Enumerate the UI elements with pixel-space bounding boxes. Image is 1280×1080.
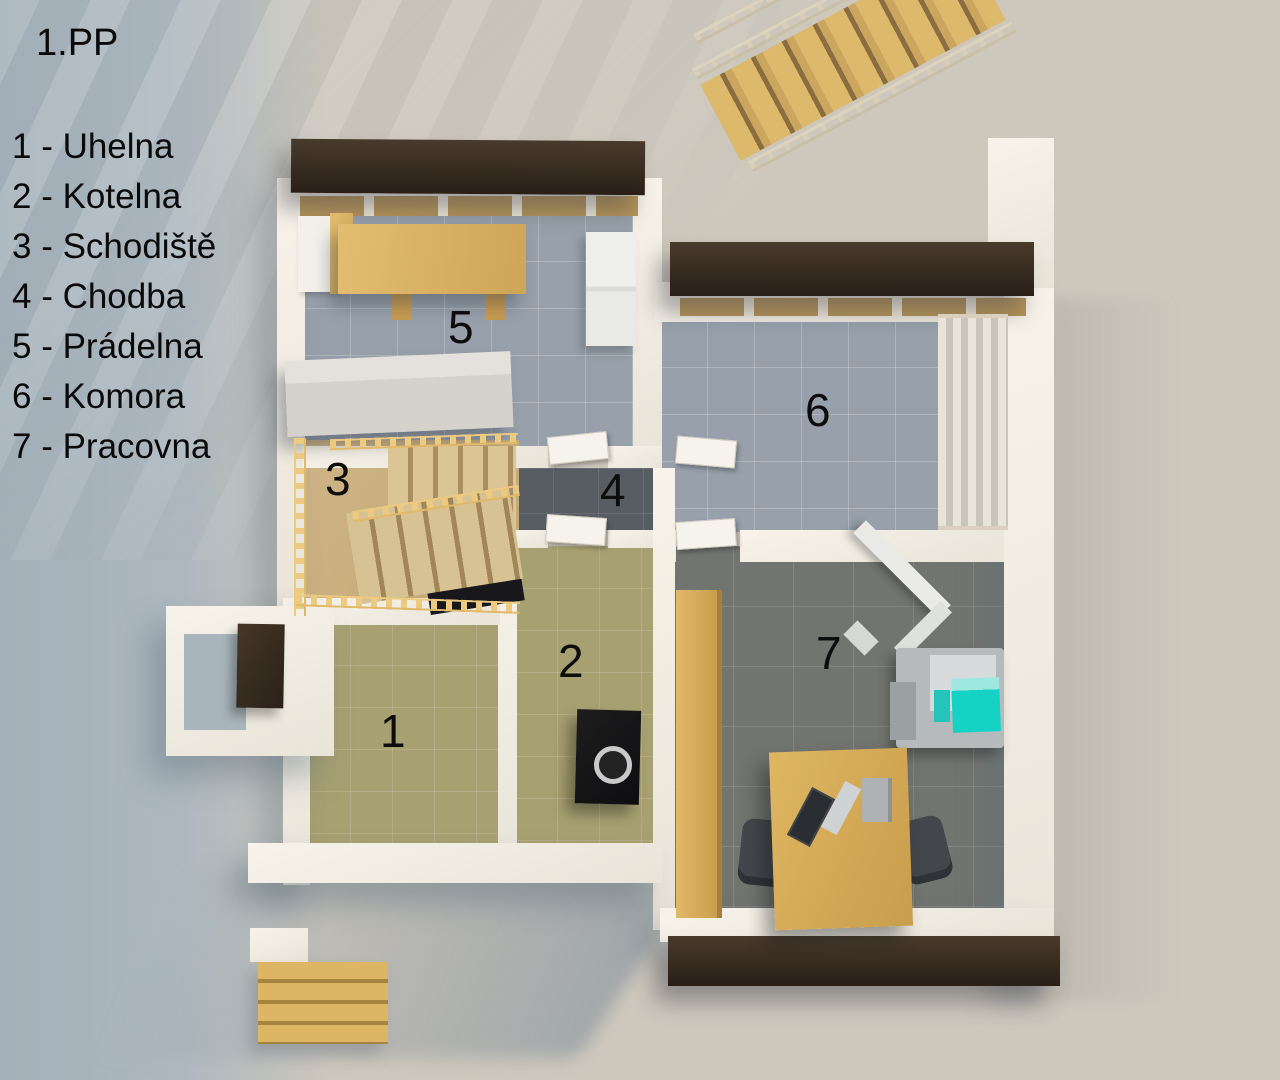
storage-shelving-unit: [938, 314, 1008, 530]
room-label-kotelna: 2: [558, 634, 584, 688]
room-label-pradelna: 5: [448, 300, 474, 354]
stair-railing-left: [294, 438, 306, 616]
background-shadow-right: [1054, 300, 1174, 1000]
legend-item-kotelna: 2 - Kotelna: [12, 172, 216, 222]
laundry-table-leg: [486, 292, 506, 320]
office-desk: [769, 748, 913, 931]
door-to-kotelna: [545, 514, 607, 546]
legend-item-uhelna: 1 - Uhelna: [12, 122, 216, 172]
cyan-screen-machine-side: [890, 682, 916, 740]
legend-item-chodba: 4 - Chodba: [12, 272, 216, 322]
room-label-komora: 6: [805, 383, 831, 437]
legend-item-pradelna: 5 - Prádelna: [12, 322, 216, 372]
washing-machine-cabinet: [586, 232, 636, 346]
door-to-komora: [675, 435, 737, 468]
room-label-schodiste: 3: [325, 452, 351, 506]
door-to-pracovna: [675, 518, 737, 550]
window-lintel-beam-room5: [291, 139, 645, 195]
room-label-chodba: 4: [600, 463, 626, 517]
exterior-cellar-steps: [258, 962, 388, 1044]
floorplan-render: 5 6 3 4 2 1 7 1.PP 1 - Uhelna 2 - Koteln…: [0, 0, 1280, 1080]
wall-bottom-rooms-1-2: [248, 843, 662, 883]
cyan-panel-screen: [951, 677, 1001, 733]
cyan-panel-small: [934, 690, 950, 722]
office-bookcase: [676, 590, 722, 918]
wall-right-outer: [1004, 282, 1054, 978]
legend-item-komora: 6 - Komora: [12, 372, 216, 422]
window-lintel-beam-room7: [668, 936, 1060, 986]
room-label-pracovna: 7: [816, 626, 842, 680]
desk-pc-box: [862, 778, 892, 822]
room-label-uhelna: 1: [380, 704, 406, 758]
legend-item-schodiste: 3 - Schodiště: [12, 222, 216, 272]
floor-title: 1.PP: [36, 22, 118, 65]
coal-chute-cabinet: [236, 624, 284, 709]
laundry-bench: [284, 351, 513, 437]
window-lintel-beam-room6: [670, 242, 1034, 296]
laundry-table-leg: [392, 292, 412, 320]
legend: 1 - Uhelna 2 - Kotelna 3 - Schodiště 4 -…: [12, 122, 216, 472]
legend-item-pracovna: 7 - Pracovna: [12, 422, 216, 472]
boiler-flue-port: [594, 746, 632, 784]
exterior-steps-wall-stub: [250, 928, 308, 962]
laundry-table: [338, 224, 526, 294]
